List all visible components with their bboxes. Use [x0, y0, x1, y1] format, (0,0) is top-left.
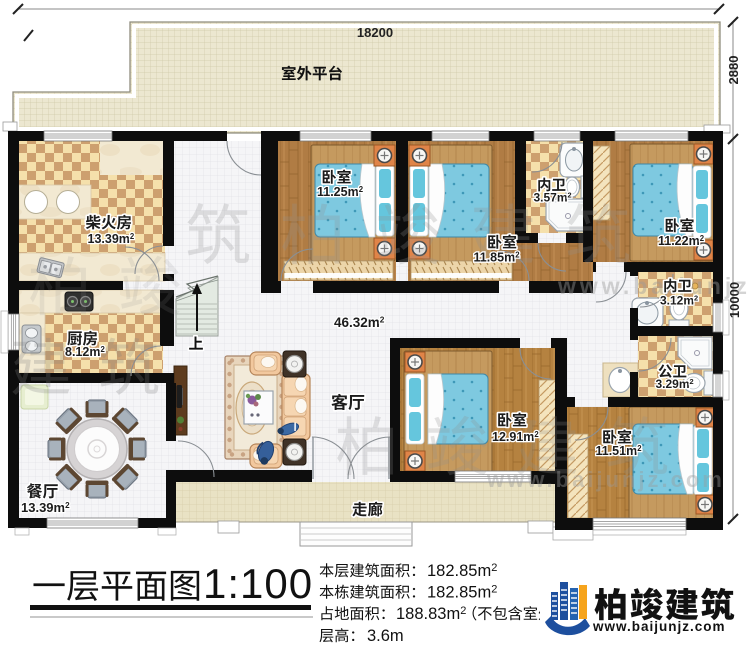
svg-text:8.12m2: 8.12m2	[65, 345, 105, 359]
svg-text:11.51m2: 11.51m2	[596, 444, 643, 458]
svg-text:12.91m2: 12.91m2	[492, 430, 539, 444]
svg-text:13.39m2: 13.39m2	[21, 500, 70, 515]
svg-text:11.85m2: 11.85m2	[474, 251, 521, 265]
svg-text:11.25m2: 11.25m2	[317, 185, 364, 199]
svg-text:46.32m2: 46.32m2	[334, 315, 385, 330]
svg-text:3.6m: 3.6m	[367, 627, 404, 645]
svg-text:18200: 18200	[357, 25, 393, 40]
svg-text:3.57m2: 3.57m2	[534, 191, 572, 205]
svg-text:188.83m2: 188.83m2	[396, 605, 466, 623]
svg-text:13.39m2: 13.39m2	[88, 232, 135, 246]
svg-text:3.12m2: 3.12m2	[660, 294, 698, 308]
svg-text:2880: 2880	[726, 56, 741, 85]
svg-text:11.22m2: 11.22m2	[658, 234, 705, 248]
svg-text:www.baijunjz.com: www.baijunjz.com	[592, 619, 726, 634]
svg-text:1:100: 1:100	[203, 560, 313, 607]
svg-text:3.29m2: 3.29m2	[656, 377, 694, 391]
svg-text:182.85m2: 182.85m2	[427, 562, 497, 580]
svg-text:www.baijunjz.com: www.baijunjz.com	[557, 273, 750, 299]
svg-text:182.85m2: 182.85m2	[427, 584, 497, 602]
svg-text:www.baijunjz.com: www.baijunjz.com	[486, 467, 725, 492]
